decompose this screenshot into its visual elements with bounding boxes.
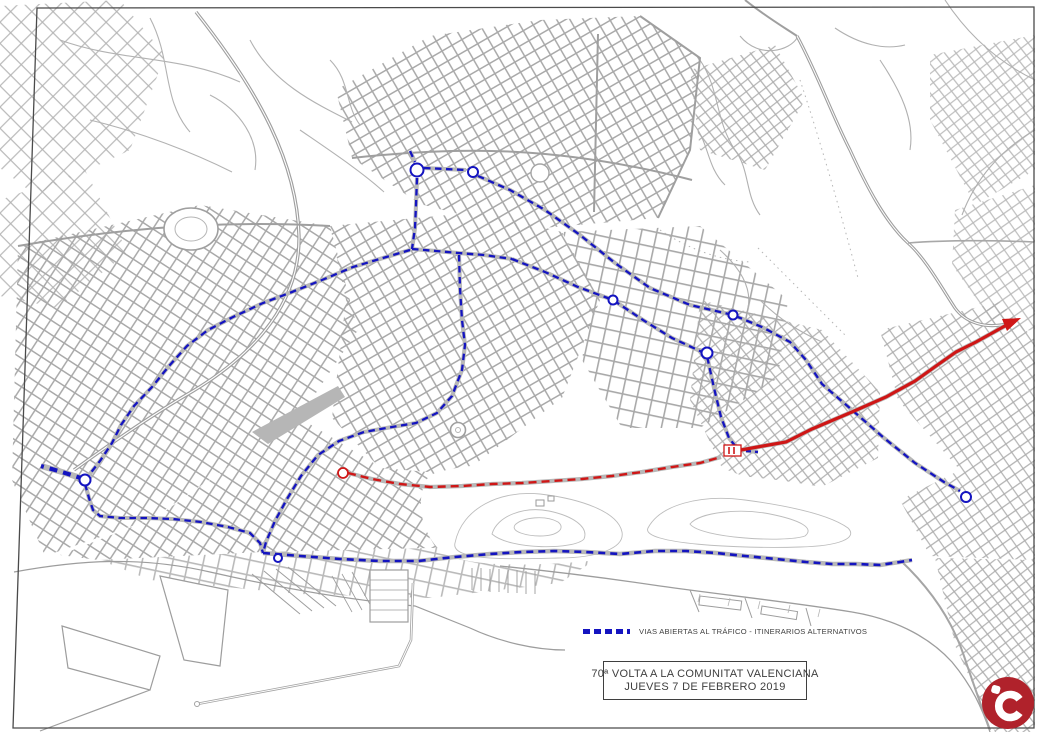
ic-logo	[981, 676, 1035, 730]
roundabout-ring	[702, 348, 713, 359]
marina	[690, 590, 811, 626]
roundabout-ring	[729, 311, 738, 320]
legend-dash-sample	[583, 629, 630, 634]
title-box: 70ª VOLTA A LA COMUNITAT VALENCIANA JUEV…	[603, 661, 807, 700]
title-line-2: JUEVES 7 DE FEBRERO 2019	[624, 681, 785, 693]
street-network-layer	[0, 0, 1035, 732]
round-park	[531, 164, 549, 182]
roundabout-ring	[609, 296, 618, 305]
legend-label: VIAS ABIERTAS AL TRÁFICO - ITINERARIOS A…	[639, 627, 867, 636]
roundabout-ring	[468, 167, 478, 177]
route-map-page: VIAS ABIERTAS AL TRÁFICO - ITINERARIOS A…	[0, 0, 1038, 732]
city-map-canvas	[0, 0, 1038, 732]
roundabout-ring	[338, 468, 348, 478]
roundabout-ring	[411, 164, 424, 177]
finish-line-marker	[724, 445, 741, 456]
logo-circle	[982, 677, 1034, 729]
roundabout-ring	[961, 492, 971, 502]
roundabout-ring	[274, 554, 282, 562]
circular-plaza	[451, 423, 466, 438]
coastline	[500, 566, 990, 732]
title-line-1: 70ª VOLTA A LA COMUNITAT VALENCIANA	[591, 668, 818, 680]
legend: VIAS ABIERTAS AL TRÁFICO - ITINERARIOS A…	[583, 627, 867, 636]
oval-park	[164, 208, 218, 250]
roundabout-ring	[80, 475, 91, 486]
